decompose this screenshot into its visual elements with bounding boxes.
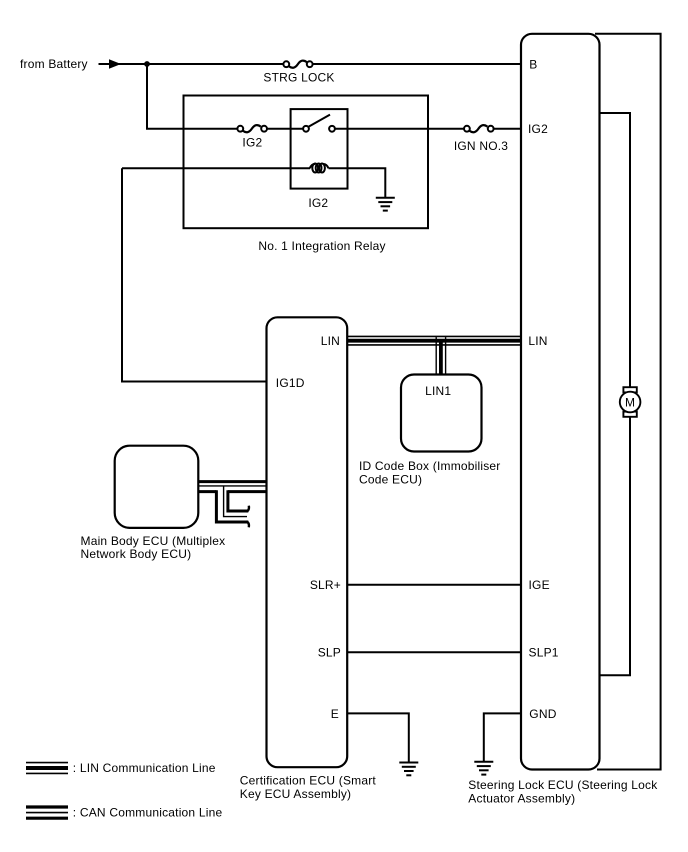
svg-text:Certification ECU (Smart: Certification ECU (Smart (240, 774, 377, 788)
svg-text:Actuator Assembly): Actuator Assembly) (468, 791, 575, 805)
svg-text:SLP: SLP (318, 646, 341, 660)
svg-text:SLP1: SLP1 (529, 646, 559, 660)
svg-text:E: E (331, 707, 339, 721)
svg-text:from Battery: from Battery (20, 57, 88, 71)
svg-text:M: M (625, 396, 635, 410)
svg-text:IG2: IG2 (242, 136, 262, 150)
svg-text:LIN: LIN (528, 334, 547, 348)
svg-text:LIN: LIN (321, 334, 340, 348)
svg-text:IGE: IGE (529, 578, 550, 592)
svg-text:IG2: IG2 (528, 122, 548, 136)
svg-text:: LIN Communication Line: : LIN Communication Line (73, 761, 216, 775)
svg-text:: CAN Communication Line: : CAN Communication Line (73, 806, 223, 820)
svg-text:No. 1 Integration Relay: No. 1 Integration Relay (258, 239, 385, 253)
svg-text:Main Body ECU (Multiplex: Main Body ECU (Multiplex (81, 534, 226, 548)
svg-text:IG1D: IG1D (276, 376, 305, 390)
svg-text:SLR+: SLR+ (310, 578, 341, 592)
svg-text:IGN NO.3: IGN NO.3 (454, 139, 508, 153)
svg-text:Steering Lock ECU (Steering Lo: Steering Lock ECU (Steering Lock (468, 778, 658, 792)
svg-text:B: B (529, 57, 537, 71)
svg-text:GND: GND (529, 707, 556, 721)
svg-text:ID Code Box (Immobiliser: ID Code Box (Immobiliser (359, 459, 501, 473)
svg-text:Code ECU): Code ECU) (359, 472, 422, 486)
svg-text:Network Body ECU): Network Body ECU) (81, 547, 192, 561)
svg-text:STRG LOCK: STRG LOCK (263, 70, 334, 84)
svg-text:Key ECU Assembly): Key ECU Assembly) (240, 787, 351, 801)
svg-text:IG2: IG2 (308, 196, 328, 210)
svg-text:LIN1: LIN1 (425, 384, 451, 398)
